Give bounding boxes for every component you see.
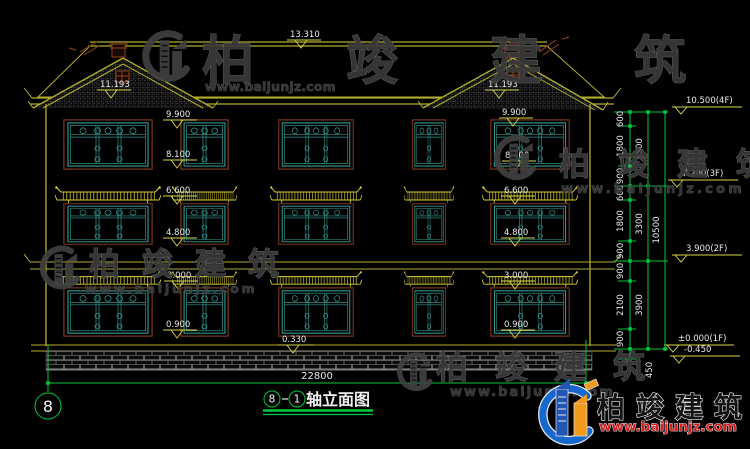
- window: [181, 120, 228, 169]
- dim-text: 900: [616, 243, 626, 259]
- title-text: 轴立面图: [306, 390, 370, 409]
- window: [413, 288, 446, 336]
- title-axis-end: 1: [294, 394, 301, 406]
- watermark-top: 柏竣建筑 www.baijunjz.com: [146, 32, 750, 94]
- dim-total-height: 10500: [652, 216, 662, 243]
- watermark-middle-right: 柏竣建筑 www.baijunjz.com: [497, 138, 750, 197]
- brand-logo: 柏竣建筑 www.baijunjz.com: [543, 378, 750, 441]
- window: [413, 204, 446, 245]
- floor-level-label: ±0.000(1F): [678, 334, 726, 344]
- dim-text: 2100: [616, 294, 626, 316]
- elevation-label: 0.900: [166, 320, 190, 330]
- dim-text: 600: [616, 111, 626, 127]
- logo-building-orange: [574, 403, 587, 436]
- elevation-label: 4.800: [166, 228, 190, 238]
- window-canopy: [404, 271, 454, 287]
- window: [279, 204, 353, 245]
- logo-building-tall: [556, 389, 568, 436]
- elevation-label: 6.600: [166, 186, 190, 196]
- watermark-logo-icon: [497, 138, 533, 177]
- elevation-label: 4.800: [504, 228, 528, 238]
- dim-text: 900: [616, 331, 626, 347]
- window-canopy: [482, 271, 578, 287]
- ridge-chimney-left: [109, 44, 128, 57]
- window: [279, 120, 353, 169]
- elevation-label: 0.900: [504, 320, 528, 330]
- window-canopy: [270, 186, 362, 203]
- window: [491, 288, 569, 336]
- drawing-canvas: 13.310 11.193 11.193 9.900 9.900 8.100 8…: [0, 0, 750, 449]
- elevation-label: 8.100: [166, 150, 190, 160]
- watermark-logo-icon: [43, 249, 77, 287]
- window: [413, 120, 446, 169]
- dim-subtotal: 3300: [635, 213, 645, 235]
- watermark-brand: 柏竣建筑: [559, 147, 750, 183]
- window: [64, 204, 152, 245]
- dim-total-width: 22800: [301, 371, 333, 382]
- elevation-label: 11.193: [100, 80, 130, 90]
- drawing-title: 8 1 轴立面图: [263, 390, 373, 415]
- window: [64, 120, 152, 169]
- windows-3f: [64, 120, 569, 169]
- elevation-label: 3.000: [504, 271, 528, 281]
- watermark-logo-icon: [146, 34, 187, 79]
- windows-2f: [55, 186, 578, 244]
- elevation-label: 9.900: [502, 108, 526, 118]
- watermark-url: www.baijunjz.com: [561, 182, 745, 197]
- ridge-finial-left: [69, 41, 100, 55]
- axis-bubble-8: 8: [35, 393, 61, 419]
- elevation-label: 9.900: [166, 110, 190, 120]
- floor-level-label: -0.450: [684, 345, 711, 355]
- window: [279, 288, 353, 336]
- watermark-url: www.baijunjz.com: [85, 281, 257, 296]
- watermark-url: www.baijunjz.com: [205, 79, 336, 94]
- dim-text: 900: [616, 263, 626, 279]
- floor-level-label: 3.900(2F): [686, 244, 727, 254]
- dim-subtotal: 3900: [635, 294, 645, 316]
- watermark-middle-left: 柏竣建筑 www.baijunjz.com: [43, 247, 301, 296]
- axis-number: 8: [43, 397, 53, 416]
- title-axis-start: 8: [269, 394, 276, 406]
- elevation-label: 6.600: [504, 186, 528, 196]
- watermark-brand: 柏竣建筑: [89, 247, 301, 283]
- dim-text: 1800: [616, 210, 626, 232]
- cad-elevation-drawing: 13.310 11.193 11.193 9.900 9.900 8.100 8…: [0, 0, 750, 449]
- brand-url: www.baijunjz.com: [599, 419, 737, 435]
- watermark-brand: 柏竣建筑: [436, 348, 672, 386]
- window-canopy: [55, 186, 161, 203]
- floor-level-label: 10.500(4F): [686, 96, 733, 106]
- window-canopy: [404, 186, 454, 203]
- elevation-label: 0.330: [282, 335, 306, 345]
